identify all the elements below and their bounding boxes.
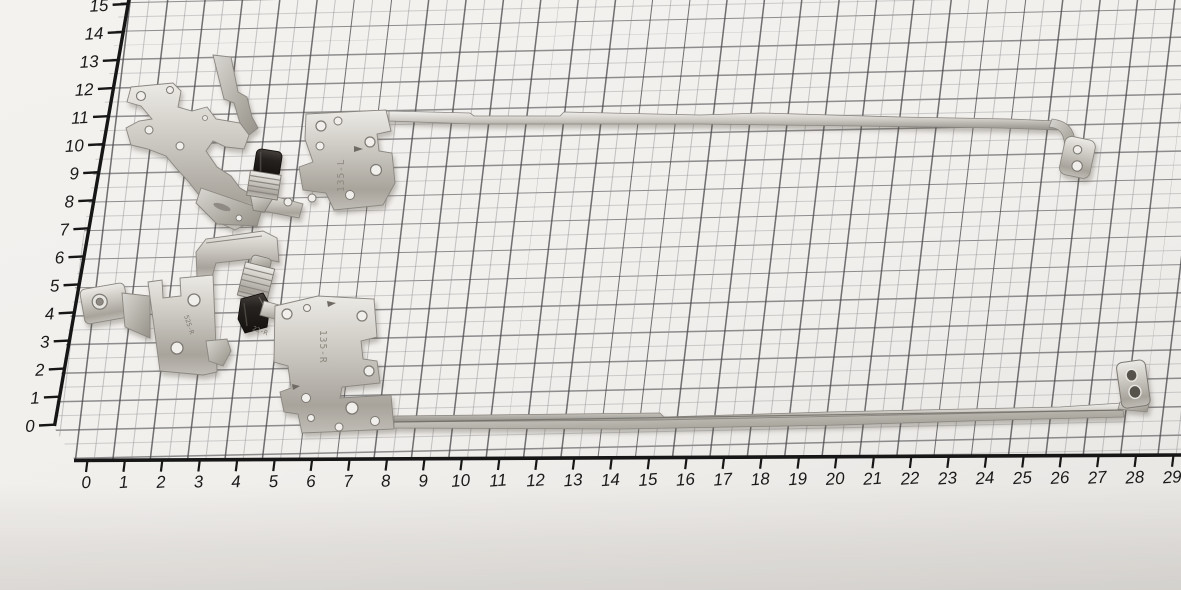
x-axis-label: 5 — [268, 472, 279, 492]
x-axis-tick — [161, 460, 163, 472]
x-axis-label: 7 — [343, 471, 354, 491]
x-axis-tick — [610, 457, 612, 469]
x-axis-tick — [236, 459, 238, 471]
x-axis-tick — [573, 458, 575, 470]
x-axis-label: 6 — [305, 472, 316, 492]
x-axis-label: 4 — [231, 472, 242, 492]
x-axis-tick — [685, 457, 687, 469]
x-axis-tick — [798, 457, 800, 469]
y-axis-tick — [68, 256, 83, 257]
x-axis-label: 3 — [193, 472, 204, 492]
x-axis-tick — [498, 458, 500, 470]
x-axis-tick — [1097, 455, 1099, 467]
x-axis-label: 16 — [675, 469, 696, 489]
x-axis-label: 21 — [861, 469, 882, 489]
upper-hinge-bracket — [126, 55, 303, 230]
x-axis-tick — [985, 456, 987, 468]
x-axis-label: 24 — [974, 468, 995, 488]
x-axis-tick — [910, 456, 912, 468]
x-axis-label: 28 — [1124, 467, 1146, 487]
lower-plate-stamp: 135-R — [317, 330, 328, 364]
x-axis-label: 17 — [713, 469, 734, 489]
y-axis-label: 12 — [74, 80, 94, 100]
y-axis-tick — [108, 32, 123, 33]
upper-hinge-assembly: 135-L — [126, 55, 1097, 230]
x-axis-label: 13 — [563, 470, 584, 490]
y-axis-tick — [54, 341, 69, 342]
lower-bracket-strip — [122, 293, 150, 338]
x-axis-tick — [386, 459, 388, 471]
lower-hinge-plate: 135-R — [274, 296, 394, 433]
x-axis-tick — [723, 457, 725, 469]
x-axis-tick — [348, 459, 350, 471]
lower-rail-end-tab — [1116, 359, 1151, 409]
y-axis-tick — [103, 60, 118, 61]
y-axis-tick — [113, 4, 128, 5]
y-axis-label: 8 — [64, 192, 75, 211]
x-axis-label: 14 — [600, 470, 620, 490]
y-axis-tick — [88, 144, 103, 145]
lower-hinge-rail — [394, 359, 1151, 429]
x-axis-tick — [461, 458, 463, 470]
lower-bracket-ear — [79, 282, 129, 324]
product-photo: 0123456789101112131415161718192021222324… — [0, 0, 1181, 590]
x-axis-label: 0 — [81, 473, 92, 493]
y-axis-label: 11 — [71, 108, 90, 128]
y-axis-label: 0 — [25, 416, 36, 435]
y-axis-tick — [64, 284, 79, 285]
y-axis-label: 1 — [30, 388, 40, 407]
x-axis-label: 26 — [1049, 468, 1071, 488]
y-axis-tick — [83, 172, 98, 173]
x-axis-tick — [1022, 456, 1024, 468]
lower-bracket-plate — [148, 275, 217, 375]
y-axis-tick — [59, 313, 74, 314]
y-axis-label: 9 — [69, 164, 80, 183]
x-axis-tick — [1135, 455, 1137, 467]
lower-hinge-assembly: 525-R 22-R — [79, 231, 1151, 433]
y-axis-tick — [93, 116, 108, 117]
y-axis-label: 5 — [49, 276, 60, 295]
y-axis-label: 3 — [39, 332, 50, 351]
x-axis-label: 20 — [824, 469, 846, 489]
x-axis-label: 8 — [380, 471, 391, 491]
x-axis-tick — [947, 456, 949, 468]
y-axis-tick — [73, 228, 88, 229]
x-axis-tick — [86, 460, 88, 472]
y-axis-tick — [49, 369, 64, 370]
x-axis-tick — [198, 459, 200, 471]
upper-hinge-rail — [389, 111, 1097, 180]
x-axis-label: 22 — [899, 468, 921, 488]
x-axis-tick — [835, 456, 837, 468]
scene-overlay: 0123456789101112131415161718192021222324… — [0, 0, 1181, 590]
x-axis-tick — [760, 457, 762, 469]
x-axis-label: 18 — [750, 469, 771, 489]
y-axis-tick — [39, 425, 54, 426]
x-axis-tick — [1172, 455, 1174, 467]
y-axis-label: 2 — [34, 360, 46, 380]
x-axis-line — [74, 455, 1181, 461]
x-axis-label: 12 — [525, 470, 546, 490]
x-axis-label: 23 — [936, 468, 958, 488]
upper-plate-stamp: 135-L — [336, 158, 347, 192]
y-axis-tick — [78, 200, 93, 201]
x-axis-label: 27 — [1086, 467, 1108, 487]
x-axis-label: 25 — [1011, 468, 1033, 488]
x-axis-tick — [311, 459, 313, 471]
upper-hinge-plate: 135-L — [299, 110, 395, 210]
y-axis-label: 4 — [44, 304, 54, 323]
x-axis-label: 15 — [638, 470, 659, 490]
x-axis-label: 19 — [788, 469, 809, 489]
x-axis-tick — [423, 458, 425, 470]
x-axis-label: 9 — [418, 471, 429, 491]
y-axis-tick — [98, 88, 113, 89]
y-axis-label: 7 — [59, 220, 70, 239]
x-axis-label: 29 — [1161, 467, 1181, 487]
x-axis-tick — [123, 460, 125, 472]
x-axis-tick — [648, 457, 650, 469]
y-axis-label: 15 — [89, 0, 109, 16]
x-axis-tick — [1060, 455, 1062, 467]
y-axis-tick — [44, 397, 59, 398]
y-axis-label: 6 — [54, 248, 65, 267]
y-axis-label: 14 — [84, 24, 104, 44]
x-axis-label: 11 — [489, 470, 508, 490]
x-axis-label: 2 — [155, 472, 167, 492]
x-axis-label: 1 — [118, 473, 129, 493]
x-axis-tick — [273, 459, 275, 471]
x-axis-tick — [872, 456, 874, 468]
x-axis-label: 10 — [451, 471, 472, 491]
x-axis-tick — [535, 458, 537, 470]
y-axis-label: 13 — [79, 52, 99, 72]
y-axis-label: 10 — [64, 136, 84, 156]
